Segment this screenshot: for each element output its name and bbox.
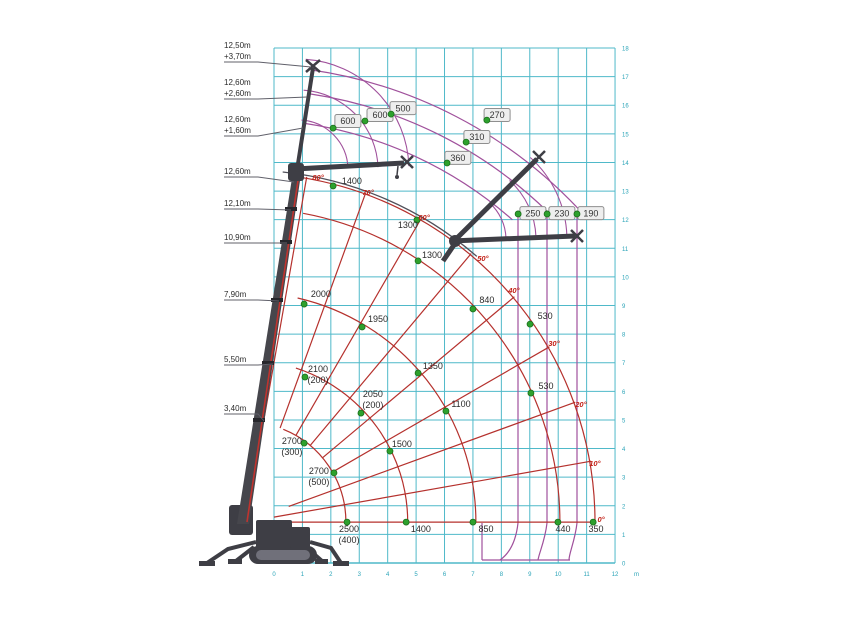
boom-angle-label: 0°	[598, 515, 606, 524]
capacity-badge-value: 270	[490, 110, 505, 120]
capacity-label: 2000	[311, 289, 331, 299]
x-tick-label: 11	[584, 572, 591, 578]
capacity-label: 1300	[398, 220, 418, 230]
boom-angle-label: 70°	[362, 188, 374, 197]
load-chart: 0123456789101112012345678910111213141516…	[0, 0, 860, 620]
boom-config-label: 5,50m	[224, 355, 247, 364]
y-tick-label: 15	[622, 132, 629, 138]
crane-body	[256, 520, 292, 548]
data-point-dot	[415, 258, 421, 264]
data-point-dot	[359, 324, 365, 330]
capacity-badge-value: 600	[340, 116, 355, 126]
capacity-label: 2050	[363, 389, 383, 399]
data-point-dot	[528, 390, 534, 396]
outrigger-foot	[315, 559, 328, 564]
capacity-label: 2700	[309, 466, 329, 476]
data-point-dot	[544, 211, 550, 217]
crane-cab	[290, 527, 310, 548]
data-point-dot	[484, 117, 490, 123]
capacity-label: 1300	[422, 250, 442, 260]
boom-angle-label: 80°	[312, 173, 324, 182]
outrigger-foot	[199, 561, 215, 566]
boom-config-label: 3,40m	[224, 404, 247, 413]
capacity-note: (200)	[308, 375, 329, 385]
capacity-note: (300)	[281, 447, 302, 457]
boom-config-label: 12,60m	[224, 78, 251, 87]
hook	[395, 175, 399, 179]
data-point-dot	[415, 370, 421, 376]
capacity-label: 2100	[308, 364, 328, 374]
capacity-note: (400)	[339, 535, 360, 545]
data-point-dot	[470, 306, 476, 312]
capacity-note: (500)	[308, 477, 329, 487]
capacity-label: 530	[538, 311, 553, 321]
boom-angle-label: 40°	[507, 286, 520, 295]
boom-angle-label: 20°	[574, 400, 587, 409]
y-tick-label: 16	[622, 104, 629, 110]
hook-line	[397, 166, 398, 175]
boom-config-label: 12,10m	[224, 199, 251, 208]
boom-config-label: 7,90m	[224, 290, 247, 299]
capacity-label: 1500	[392, 439, 412, 449]
data-point-dot	[330, 125, 336, 131]
data-point-dot	[301, 301, 307, 307]
capacity-label: 440	[556, 524, 571, 534]
data-point-dot	[527, 321, 533, 327]
data-point-dot	[463, 139, 469, 145]
capacity-badge-value: 360	[450, 153, 465, 163]
capacity-label: 1950	[368, 314, 388, 324]
y-tick-label: 12	[622, 218, 629, 224]
capacity-badge-value: 600	[372, 110, 387, 120]
boom-config-label: 10,90m	[224, 233, 251, 242]
boom-angle-label: 10°	[589, 459, 601, 468]
capacity-label: 350	[588, 524, 603, 534]
capacity-badge-value: 190	[583, 208, 598, 218]
y-tick-label: 18	[622, 47, 629, 53]
boom-config-label: +1,60m	[224, 126, 251, 135]
capacity-label: 2700	[282, 436, 302, 446]
boom-angle-label: 50°	[477, 254, 489, 263]
outrigger-foot	[333, 561, 349, 566]
data-point-dot	[574, 211, 580, 217]
capacity-badge-value: 250	[525, 208, 540, 218]
y-tick-label: 11	[622, 247, 629, 253]
capacity-badge-value: 500	[396, 103, 411, 113]
data-point-dot	[330, 183, 336, 189]
data-point-dot	[362, 118, 368, 124]
capacity-label: 1400	[342, 176, 362, 186]
capacity-label: 2500	[339, 524, 359, 534]
y-tick-label: 13	[622, 190, 629, 196]
capacity-label: 1100	[451, 399, 470, 409]
capacity-note: (200)	[362, 400, 383, 410]
data-point-dot	[403, 519, 409, 525]
data-point-dot	[444, 160, 450, 166]
x-tick-label: 10	[555, 572, 562, 578]
boom-config-label: +3,70m	[224, 52, 251, 61]
capacity-label: 530	[538, 381, 553, 391]
data-point-dot	[515, 211, 521, 217]
boom-config-label: +2,60m	[224, 89, 251, 98]
data-point-dot	[443, 408, 449, 414]
data-point-dot	[388, 111, 394, 117]
capacity-label: 1350	[423, 361, 443, 371]
boom-config-label: 12,50m	[224, 41, 251, 50]
data-point-dot	[470, 519, 476, 525]
capacity-label: 850	[478, 524, 493, 534]
data-point-dot	[358, 410, 364, 416]
x-axis-unit: m	[634, 572, 639, 578]
capacity-label: 840	[479, 295, 494, 305]
boom-angle-label: 30°	[548, 339, 560, 348]
capacity-badge-value: 230	[554, 208, 569, 218]
y-tick-label: 10	[622, 275, 629, 281]
data-point-dot	[301, 440, 307, 446]
boom-config-label: 12,60m	[224, 115, 251, 124]
y-tick-label: 14	[622, 161, 629, 167]
x-tick-label: 12	[612, 572, 619, 578]
y-tick-label: 17	[622, 75, 629, 81]
capacity-badge-value: 310	[469, 132, 484, 142]
boom-config-label: 12,60m	[224, 167, 251, 176]
boom-angle-label: 60°	[418, 213, 430, 222]
capacity-label: 1400	[411, 524, 431, 534]
crawler-track-inner	[256, 550, 310, 560]
data-point-dot	[331, 470, 337, 476]
outrigger-foot	[228, 559, 242, 564]
crane-load-chart-page: 0123456789101112012345678910111213141516…	[0, 0, 860, 620]
